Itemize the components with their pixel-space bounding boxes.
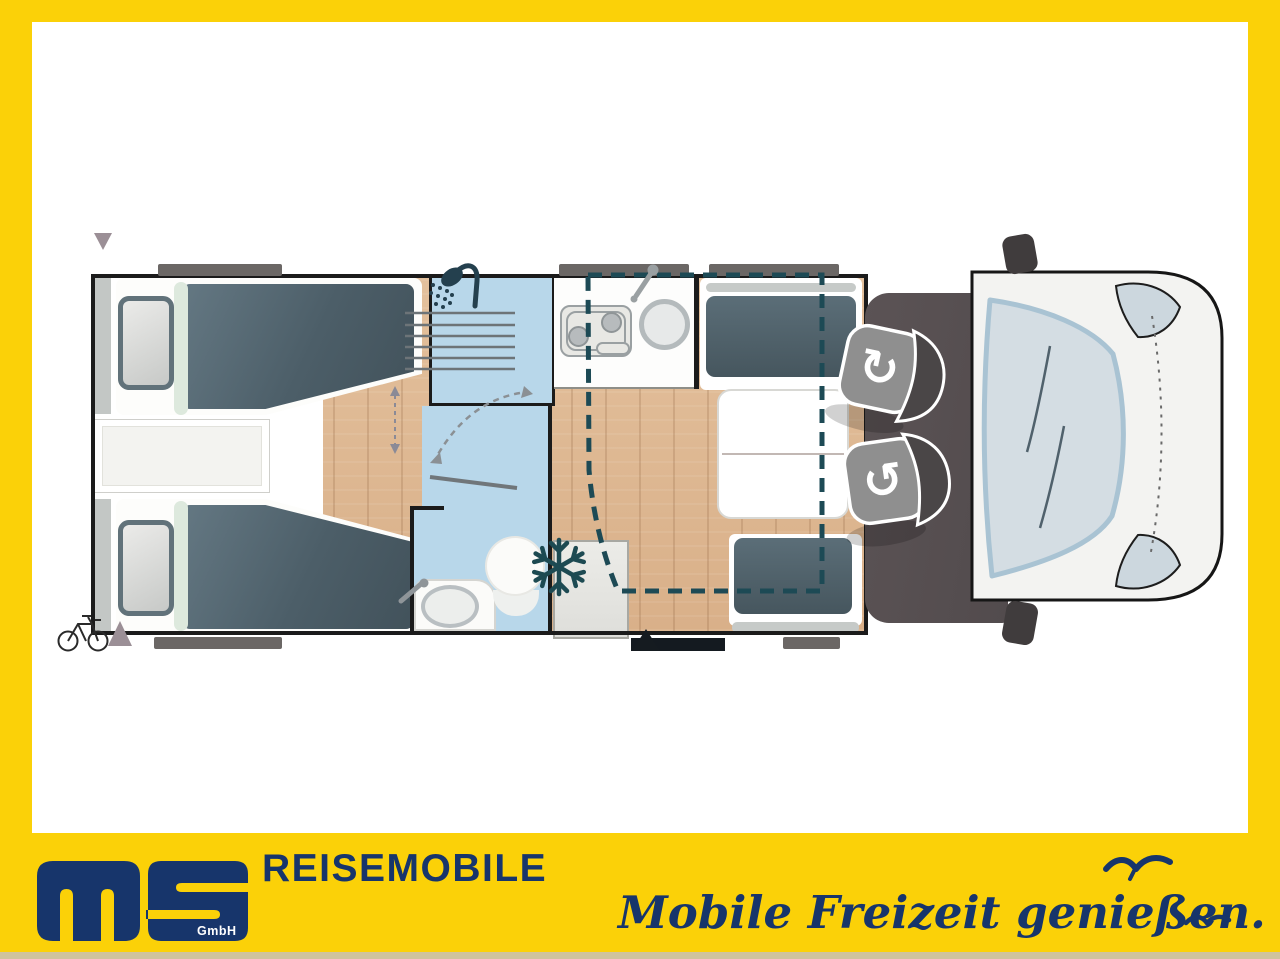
window-bar-rear-bottom: [154, 637, 282, 649]
slogan-text: Mobile Freizeit genießen.: [618, 890, 1266, 935]
white-canvas: [32, 22, 1248, 833]
window-bar-kitchen: [559, 264, 689, 276]
seagull-icon-large: [1106, 858, 1170, 879]
window-bar-dinette-bottom: [783, 637, 840, 649]
footer-bottom-strip: [0, 952, 1280, 959]
company-wordmark: REISEMOBILE: [262, 849, 547, 888]
window-bar-dinette-top: [709, 264, 839, 276]
entrance-door-bar: [631, 638, 725, 651]
window-bar-rear-top: [158, 264, 282, 276]
logo-gmbh-label: GmbH: [197, 924, 237, 938]
listing-image: GmbH REISEMOBILE Mobile Freizeit genieße…: [0, 0, 1280, 959]
cab-floor: [865, 293, 1008, 623]
logo-m-glyph: [37, 861, 140, 941]
habitation-wall: [91, 274, 868, 635]
